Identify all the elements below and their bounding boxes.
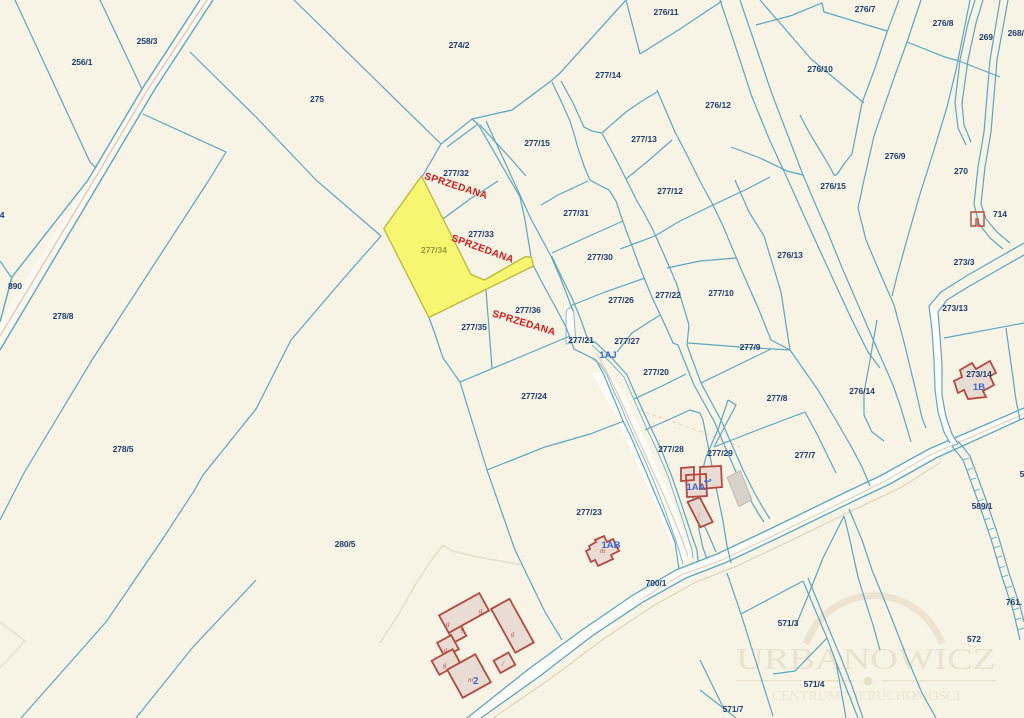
svg-text:276/7: 276/7: [855, 4, 876, 14]
svg-text:277/9: 277/9: [740, 342, 761, 352]
svg-text:4: 4: [0, 210, 5, 220]
svg-text:277/15: 277/15: [524, 138, 550, 148]
svg-text:277/32: 277/32: [443, 168, 469, 178]
svg-text:URBANOWICZ: URBANOWICZ: [736, 641, 996, 676]
svg-text:g: g: [446, 620, 450, 628]
svg-text:277/14: 277/14: [595, 70, 621, 80]
svg-text:g: g: [511, 630, 515, 638]
svg-text:277/13: 277/13: [631, 134, 657, 144]
svg-text:g: g: [461, 625, 465, 633]
svg-text:277/20: 277/20: [643, 367, 669, 377]
svg-text:761.: 761.: [1006, 597, 1022, 607]
svg-text:571/4: 571/4: [804, 679, 825, 689]
svg-text:280/5: 280/5: [335, 539, 356, 549]
svg-text:277/28: 277/28: [658, 444, 684, 454]
svg-text:277/34: 277/34: [421, 245, 447, 255]
svg-text:714: 714: [993, 209, 1007, 219]
svg-text:277/23: 277/23: [576, 507, 602, 517]
svg-text:276/11: 276/11: [654, 7, 679, 17]
svg-text:277/8: 277/8: [767, 393, 788, 403]
svg-text:2: 2: [473, 676, 479, 687]
svg-text:276/15: 276/15: [820, 181, 846, 191]
svg-text:277/12: 277/12: [657, 186, 683, 196]
svg-text:CENTRUM NIERUCHOMOŚCI: CENTRUM NIERUCHOMOŚCI: [772, 687, 961, 704]
svg-text:277/24: 277/24: [521, 391, 547, 401]
svg-text:278/5: 278/5: [113, 444, 134, 454]
svg-text:276/12: 276/12: [705, 100, 731, 110]
svg-text:571/7: 571/7: [723, 704, 744, 714]
svg-text:↩: ↩: [704, 476, 712, 486]
svg-text:277/33: 277/33: [468, 229, 494, 239]
svg-text:276/13: 276/13: [777, 250, 803, 260]
svg-text:273/13: 273/13: [942, 303, 968, 313]
svg-text:277/7: 277/7: [795, 450, 816, 460]
svg-text:276/10: 276/10: [807, 64, 833, 74]
svg-text:275: 275: [310, 94, 324, 104]
svg-text:277/26: 277/26: [608, 295, 634, 305]
svg-text:277/27: 277/27: [614, 336, 640, 346]
svg-text:890: 890: [8, 281, 22, 291]
svg-text:276/14: 276/14: [849, 386, 875, 396]
svg-text:273/3: 273/3: [954, 257, 975, 267]
svg-text:1AA: 1AA: [686, 482, 705, 493]
svg-text:277/35: 277/35: [461, 322, 487, 332]
svg-text:700/1: 700/1: [646, 578, 667, 588]
svg-text:277/31: 277/31: [563, 208, 589, 218]
svg-text:277/36: 277/36: [515, 305, 541, 315]
svg-text:g: g: [444, 646, 448, 654]
svg-text:1AJ: 1AJ: [599, 350, 616, 361]
svg-text:256/1: 256/1: [72, 57, 93, 67]
svg-text:273/14: 273/14: [966, 369, 992, 379]
svg-text:277/10: 277/10: [708, 288, 734, 298]
svg-text:277/29: 277/29: [707, 448, 733, 458]
svg-text:5: 5: [1020, 469, 1024, 479]
svg-text:572: 572: [967, 634, 981, 644]
svg-text:589/1: 589/1: [972, 501, 993, 511]
svg-text:277/30: 277/30: [587, 252, 613, 262]
svg-text:269: 269: [979, 32, 993, 42]
svg-text:g: g: [479, 607, 483, 615]
svg-text:274/2: 274/2: [449, 40, 470, 50]
svg-text:258/3: 258/3: [137, 36, 158, 46]
svg-text:g: g: [443, 661, 447, 669]
svg-text:277/21: 277/21: [568, 335, 594, 345]
svg-text:277/22: 277/22: [655, 290, 681, 300]
svg-text:278/8: 278/8: [53, 311, 74, 321]
svg-text:270: 270: [954, 166, 968, 176]
svg-text:m: m: [600, 547, 605, 555]
svg-text:1B: 1B: [973, 382, 985, 393]
svg-text:571/3: 571/3: [778, 618, 799, 628]
svg-text:268/7: 268/7: [1008, 28, 1024, 38]
svg-text:276/9: 276/9: [885, 151, 906, 161]
svg-text:276/8: 276/8: [933, 18, 954, 28]
